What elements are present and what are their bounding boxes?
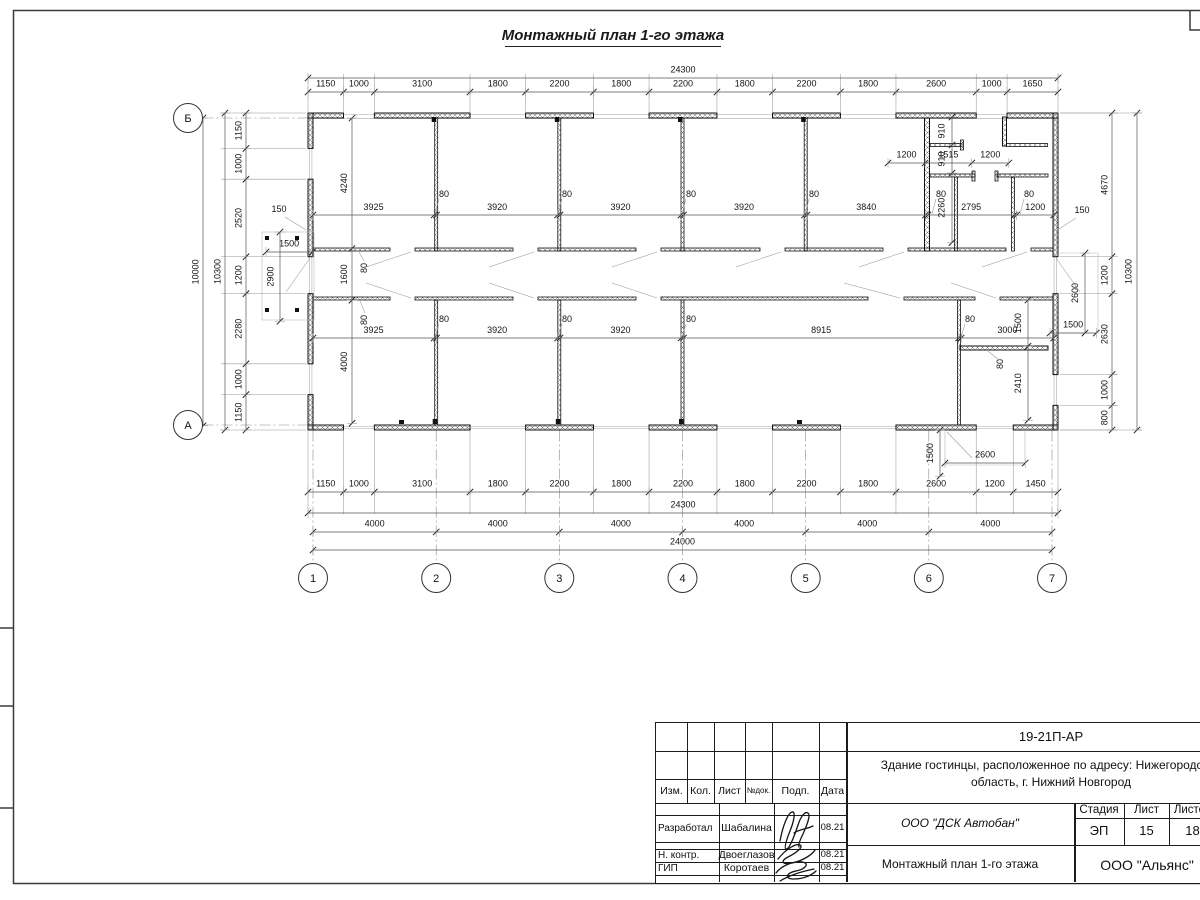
door-swing [489,283,534,298]
stamp-date-gip: 08.21 [819,862,846,875]
anchor-plate [801,117,806,122]
dim-label: 2900 [266,267,276,287]
dim-label: 80 [936,189,946,199]
dim-label: 2795 [961,202,981,212]
leader-line [360,301,365,313]
dim-label: 150 [1074,205,1089,215]
dim-label: 3840 [856,202,876,212]
dim-label: 3100 [412,479,432,489]
exterior-wall [374,113,470,118]
dim-label: 10000 [191,259,201,284]
corridor-wall [538,297,636,300]
dim-label: 1500 [1063,320,1083,330]
dim-label: 1000 [349,479,369,489]
dim-label: 1000 [982,79,1002,89]
door-swing [366,283,411,298]
exterior-wall [1053,405,1058,430]
stamp-col-ndok: №док. [745,779,772,803]
dim-label: 2600 [975,450,995,460]
stamp-date-ncontrol: 08.21 [819,849,846,862]
door-swing [859,252,904,267]
dim-label: 800 [1100,410,1110,425]
dim-label: 2200 [673,79,693,89]
partition [997,174,1048,177]
dim-label: 80 [359,263,369,273]
title-block: Изм. Кол. Лист №док. Подп. Дата 19-21П-А… [655,722,1200,884]
door-swing [489,252,534,267]
dim-label: 1800 [735,79,755,89]
exterior-wall [308,294,313,364]
exterior-wall [649,113,717,118]
dim-label: 1200 [1100,265,1110,285]
dim-label: 4000 [488,519,508,529]
stamp-line [656,751,1200,752]
stamp-doc-number: 19-21П-АР [846,723,1200,751]
corridor-wall [1031,248,1053,251]
exterior-wall [526,425,594,430]
stamp-role-gip: ГИП [658,862,719,875]
stamp-contractor: ООО "ДСК Автобан" [846,803,1074,845]
axis-label: А [184,420,192,432]
stamp-name-ncontrol: Двоеглазов [719,849,774,862]
dim-label: 2200 [550,479,570,489]
corridor-wall [661,297,868,300]
stamp-sheets-label: Листов [1169,803,1200,818]
dim-label: 2200 [550,79,570,89]
door-swing [982,252,1027,267]
anchor-plate [399,420,404,424]
exterior-wall [773,425,841,430]
door-swing [366,252,411,267]
door-swing [844,283,900,298]
dim-label: 1800 [858,79,878,89]
dim-label: 1800 [611,79,631,89]
dim-label: 80 [686,314,696,324]
dim-label: 2200 [796,479,816,489]
dim-label: 1650 [1023,79,1043,89]
dim-label: 1800 [488,479,508,489]
page-title: Монтажный план 1-го этажа [502,27,725,44]
stamp-role-developer: Разработал [658,815,719,842]
partition-wall [960,346,1048,350]
dim-label: 910 [937,123,947,138]
dim-label: 1200 [234,265,244,285]
corridor-wall [538,248,636,251]
dim-label: 1200 [980,150,1000,160]
axis-label: 2 [433,573,439,585]
dim-label: 1200 [897,150,917,160]
dim-label: 24000 [670,537,695,547]
leader-line [359,252,364,261]
dim-label: 1000 [349,79,369,89]
partition-end [972,171,975,181]
partition [558,300,561,425]
dim-label: 10300 [1124,259,1134,284]
dim-label: 4240 [339,173,349,193]
dim-label: 3920 [611,325,631,335]
dim-label: 8915 [811,325,831,335]
corner-mark [1190,11,1200,31]
door-swing [612,252,657,267]
anchor-plate [433,419,438,424]
leader-line [1020,199,1024,214]
stamp-date-developer: 08.21 [819,815,846,842]
dim-label: 1500 [279,239,299,249]
anchor-plate [432,117,437,122]
stamp-role-ncontrol: Н. контр. [658,849,719,862]
porch-column [265,308,269,312]
anchor-plate [679,419,684,424]
partition [681,300,684,425]
partition-wall [925,118,930,251]
exterior-wall [896,425,976,430]
dim-label: 1600 [339,264,349,284]
dim-label: 80 [562,189,572,199]
dim-label: 3920 [734,202,754,212]
dim-label: 80 [562,314,572,324]
exterior-wall [1053,113,1058,257]
stamp-company: ООО "Альянс" [1074,845,1200,885]
exterior-wall [308,113,313,148]
dim-label: 1150 [234,121,244,140]
dim-label: 1515 [938,150,958,160]
dim-label: 1500 [925,443,935,463]
anchor-plate [555,117,560,122]
door-swing [612,283,657,298]
dim-label: 1200 [1025,202,1045,212]
leader-line [285,217,306,230]
partition [558,118,561,251]
dim-label: 4000 [339,352,349,372]
partition [681,118,684,251]
dim-label: 4000 [857,519,877,529]
dim-label: 3920 [611,202,631,212]
dim-label: 80 [1024,189,1034,199]
partition [930,144,962,147]
partition [804,118,807,251]
dim-label: 1800 [488,79,508,89]
dim-label: 2600 [926,79,946,89]
dim-label: 80 [686,189,696,199]
dim-label: 2600 [926,479,946,489]
stamp-object-line2: область, г. Нижний Новгород [846,775,1200,791]
door-swing [286,258,310,292]
dim-label: 2630 [1100,324,1110,344]
dim-label: 1800 [735,479,755,489]
dim-label: 1200 [985,479,1005,489]
leader-line [988,351,999,360]
dim-label: 3920 [487,325,507,335]
exterior-wall [526,113,594,118]
dim-label: 2200 [796,79,816,89]
stamp-sheets-total: 18 [1169,818,1200,845]
dim-label: 4000 [980,519,1000,529]
door-swing [951,283,996,298]
dim-label: 80 [965,314,975,324]
corridor-wall [415,297,513,300]
dim-label: 24300 [670,500,695,510]
anchor-plate [556,419,561,424]
dim-label: 80 [439,189,449,199]
partition-end [961,140,964,150]
corridor-wall [904,297,975,300]
anchor-plate [678,117,683,122]
dim-label: 80 [439,314,449,324]
dim-label: 150 [271,204,286,214]
dim-label: 1150 [316,479,335,489]
dim-label: 1800 [611,479,631,489]
dim-label: 1450 [1026,479,1046,489]
dim-label: 80 [995,359,1005,369]
stamp-name-developer: Шабалина [719,815,774,842]
dim-label: 4000 [611,519,631,529]
dim-label: 2410 [1013,373,1023,393]
axis-label: 7 [1049,573,1055,585]
stamp-drawing-name: Монтажный план 1-го этажа [846,845,1074,885]
axis-label: 3 [556,573,562,585]
door-swing [736,252,781,267]
exterior-wall [308,395,313,430]
axis-label: 6 [926,573,932,585]
exterior-wall [1007,113,1058,118]
stamp-col-kol: Кол. [687,779,714,803]
partition [435,118,438,251]
stamp-sheet-number: 15 [1124,818,1169,845]
dim-label: 2280 [234,319,244,339]
corridor-wall [661,248,760,251]
anchor-plate [797,420,802,424]
exterior-wall [773,113,841,118]
dim-label: 1800 [858,479,878,489]
dim-label: 80 [809,189,819,199]
dim-label: 1000 [234,369,244,389]
stamp-stage-value: ЭП [1074,818,1124,845]
axis-label: Б [184,113,191,125]
dim-label: 1000 [234,154,244,174]
partition [930,174,975,177]
dim-label: 1150 [316,79,335,89]
dim-label: 1000 [1100,380,1110,400]
dim-label: 10300 [213,259,223,284]
dim-label: 3925 [364,325,384,335]
signature-ncontrol-gip [770,839,822,885]
partition [435,300,438,425]
door-swing [947,432,972,458]
stamp-col-data: Дата [819,779,846,803]
porch-column [295,308,299,312]
partition-end [995,171,998,181]
dim-label: 2520 [234,208,244,228]
dim-label: 4670 [1100,175,1110,195]
stamp-col-izm: Изм. [656,779,687,803]
exterior-wall [1013,425,1058,430]
partition [958,300,961,425]
exterior-wall [374,425,470,430]
stamp-name-gip: Коротаев [719,862,774,875]
dim-label: 1500 [1013,313,1023,333]
stamp-stage-label: Стадия [1074,803,1124,818]
stamp-col-list: Лист [714,779,745,803]
dim-label: 2200 [673,479,693,489]
leader-line [932,199,936,214]
corridor-wall [313,297,390,300]
corridor-wall [1000,297,1053,300]
stamp-sheet-label: Лист [1124,803,1169,818]
dim-label: 4000 [365,519,385,529]
exterior-wall [896,113,976,118]
axis-label: 4 [679,573,685,585]
corridor-wall [415,248,513,251]
dim-label: 24300 [670,65,695,75]
corridor-wall [785,248,883,251]
axis-label: 1 [310,573,316,585]
porch-column [265,236,269,240]
stamp-object-line1: Здание гостинцы, расположенное по адресу… [846,758,1200,774]
stamp-col-podp: Подп. [772,779,819,803]
dim-label: 2600 [1070,283,1080,303]
dim-label: 4000 [734,519,754,529]
dim-label: 1150 [234,403,244,422]
exterior-wall [649,425,717,430]
dim-label: 80 [359,315,369,325]
dim-label: 3925 [364,202,384,212]
dim-label: 3920 [487,202,507,212]
drawing-sheet: { "sheet": { "plan_title": "Монтажный пл… [0,0,1200,900]
dim-label: 3100 [412,79,432,89]
axis-label: 5 [803,573,809,585]
dim-label: 2260 [937,198,947,218]
partition [1007,144,1048,147]
partition-wall [1003,117,1007,146]
leader-line [1056,218,1076,231]
